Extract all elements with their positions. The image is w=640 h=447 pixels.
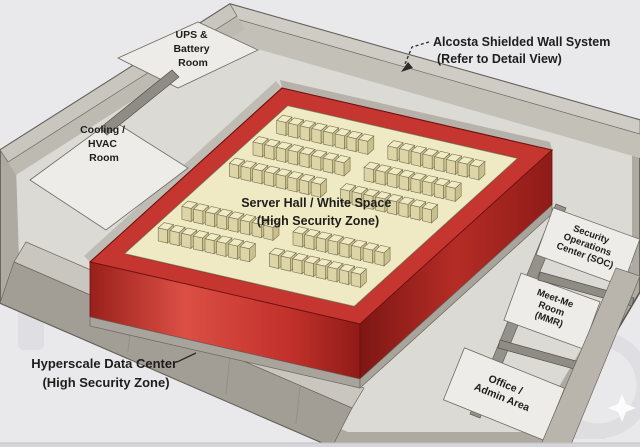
server-rack: [375, 245, 390, 266]
server-rack: [240, 241, 255, 261]
server-rack: [422, 202, 437, 223]
server-rack: [311, 177, 326, 198]
server-rack: [335, 155, 350, 176]
diagram-canvas: UPS & Battery Room Cooling / HVAC Room S…: [0, 0, 640, 447]
server-rack: [359, 134, 374, 155]
datacenter-diagram: UPS & Battery Room Cooling / HVAC Room S…: [0, 0, 640, 447]
server-rack: [351, 267, 366, 288]
room-label-ups: UPS & Battery Room: [173, 29, 212, 69]
server-rack: [446, 181, 461, 202]
server-rack: [470, 159, 485, 180]
bottom-edge-strip: [0, 443, 640, 447]
